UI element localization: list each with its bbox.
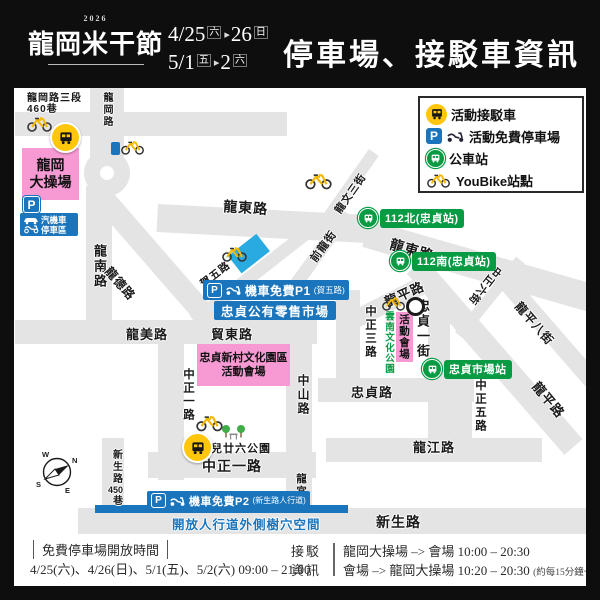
frame-bottom bbox=[0, 586, 600, 600]
market-banner: 忠貞公有零售市場 bbox=[214, 301, 336, 320]
frame-right bbox=[586, 0, 600, 600]
road-label-longgang-rd-sec3-ln460: 龍岡路三段 460巷 bbox=[27, 93, 82, 115]
footer-divider bbox=[333, 543, 335, 576]
shuttle-info-label-1: 接駁 bbox=[291, 541, 321, 560]
youbike-icon bbox=[120, 139, 146, 155]
label-park-er-nian-liu: 兒廿六公園 bbox=[211, 440, 271, 456]
shuttle-bus-icon bbox=[426, 104, 447, 125]
p2-sublabel: (新生路人行道) bbox=[252, 495, 305, 506]
legend-label: YouBike站點 bbox=[456, 171, 533, 190]
legend-label: 活動接駁車 bbox=[451, 105, 516, 124]
area-event-venue: 活動會場 bbox=[396, 312, 413, 362]
event-date-line: 4/25六▸26日 bbox=[168, 20, 270, 48]
bus-stop-label: 忠貞市場站 bbox=[444, 360, 512, 379]
logo-divider bbox=[48, 64, 144, 65]
city-bus-icon bbox=[358, 208, 378, 228]
area-culture-village-venue: 忠貞新村文化園區 活動會場 bbox=[197, 344, 290, 386]
youbike-icon bbox=[221, 245, 249, 262]
youbike-kiosk-icon bbox=[111, 142, 120, 155]
logo-title: 龍岡米干節 bbox=[28, 24, 163, 61]
event-date-line: 5/1五▸2六 bbox=[168, 48, 270, 76]
p2-label: 機車免費P2 bbox=[189, 493, 249, 509]
date-weekday: 五 bbox=[197, 54, 211, 67]
date-separator: ▸ bbox=[214, 57, 220, 69]
road-label-zhongzhen-rd: 忠貞路 bbox=[351, 382, 393, 401]
compass-w: W bbox=[42, 450, 50, 459]
shuttle-stop-park bbox=[182, 432, 213, 463]
youbike-icon bbox=[381, 295, 407, 311]
road-segment bbox=[336, 290, 360, 390]
shuttle-schedule-row1: 龍岡大操場 –> 會場 10:00 – 20:30 bbox=[343, 541, 530, 560]
free-parking-hours: 4/25(六)、4/26(日)、5/1(五)、5/2(六) 09:00 – 21… bbox=[30, 559, 311, 578]
parking-p2-banner: P 機車免費P2(新生路人行道) bbox=[147, 491, 310, 510]
shuttle-info-label-2: 資訊 bbox=[291, 560, 321, 579]
legend-label: 活動免費停車場 bbox=[469, 127, 560, 146]
bus-stop-112-north: 112北(忠貞站) bbox=[358, 208, 464, 228]
parking-p1-banner: P 機車免費P1(賀五路) bbox=[203, 280, 349, 300]
parking-icon: P bbox=[426, 128, 442, 144]
youbike-icon bbox=[304, 171, 334, 190]
compass-n: N bbox=[72, 456, 77, 465]
p1-label: 機車免費P1 bbox=[245, 282, 311, 299]
date-weekday: 六 bbox=[207, 26, 221, 39]
shuttle-row2-text: 會場 –> 龍岡大操場 10:20 – 20:30 bbox=[343, 563, 530, 578]
label-yunnan-culture-park: 雲南文化公園 bbox=[381, 311, 395, 374]
area-longgang-playground: 龍岡 大操場 bbox=[22, 148, 79, 200]
date-value: 5/1 bbox=[168, 50, 195, 74]
car-scooter-icon bbox=[23, 216, 39, 234]
legend-item-parking: P 活動免費停車場 bbox=[426, 125, 576, 147]
bus-stop-label: 112北(忠貞站) bbox=[380, 209, 464, 228]
event-dates: 4/25六▸26日 5/1五▸2六 bbox=[168, 20, 270, 76]
date-weekday: 六 bbox=[233, 54, 247, 67]
date-weekday: 日 bbox=[254, 26, 268, 39]
sidewalk-note: 開放人行道外側樹穴空間 bbox=[172, 514, 321, 533]
festival-logo: 2026 龍岡米干節 bbox=[28, 14, 163, 65]
road-label-zhongzheng-1st-rd-v: 中正一路 bbox=[180, 368, 196, 422]
shuttle-stop-playground bbox=[50, 122, 81, 153]
city-bus-icon bbox=[390, 251, 410, 271]
lane-label-num: 450 bbox=[108, 485, 123, 495]
compass-s: S bbox=[36, 480, 41, 489]
scooter-icon bbox=[446, 130, 465, 143]
car-scooter-parking-box: 汽機車 停車區 bbox=[20, 213, 78, 236]
date-value: 2 bbox=[220, 50, 231, 74]
road-label-xinsheng-rd-ln450: 新生路450巷 bbox=[108, 449, 135, 507]
date-value: 4/25 bbox=[168, 22, 205, 46]
page-title: 停車場、接駁車資訊 bbox=[283, 30, 580, 74]
youbike-icon bbox=[195, 413, 225, 432]
road-label-longnan-rd: 龍南路 bbox=[90, 244, 109, 289]
shuttle-schedule-row2: 會場 –> 龍岡大操場 10:20 – 20:30 (約每15分鐘一班車) bbox=[343, 560, 600, 579]
city-bus-icon bbox=[422, 359, 442, 379]
market-label: 忠貞公有零售市場 bbox=[221, 301, 329, 320]
scooter-icon bbox=[169, 495, 186, 507]
map-legend: 活動接駁車 P 活動免費停車場 公車站 YouBike站點 bbox=[418, 96, 584, 193]
road-label-zhongzheng-3rd-rd: 中正三路 bbox=[362, 305, 378, 359]
road-label-longgang-rd: 龍岡路 bbox=[99, 92, 114, 128]
legend-label: 公車站 bbox=[449, 149, 488, 168]
car-scooter-parking-label: 汽機車 停車區 bbox=[41, 215, 67, 235]
bus-stop-zhongzhen-market: 忠貞市場站 bbox=[422, 359, 512, 379]
mini-roundabout-icon bbox=[406, 297, 425, 316]
parking-icon: P bbox=[23, 196, 40, 213]
youbike-icon bbox=[426, 172, 452, 188]
logo-year: 2026 bbox=[28, 14, 163, 23]
parking-icon: P bbox=[151, 493, 166, 508]
city-bus-icon bbox=[426, 149, 445, 168]
compass-e: E bbox=[65, 486, 70, 495]
road-label-longjiang-rd: 龍江路 bbox=[413, 437, 455, 456]
lane-label-part: 新生路 bbox=[111, 449, 122, 485]
road-label-maodong-rd: 貿東路 bbox=[211, 324, 253, 343]
legend-item-shuttle: 活動接駁車 bbox=[426, 103, 576, 125]
parking-shuttle-map: 龍岡路三段 460巷 龍岡路 龍南路 龍德路 龍美路 貿東路 賀五路 龍東路 龍… bbox=[0, 0, 600, 600]
compass-rose: W N E S bbox=[32, 445, 82, 497]
frame-left bbox=[0, 0, 14, 600]
p1-sublabel: (賀五路) bbox=[314, 284, 345, 296]
road-label-zhongzheng-5th-rd: 中正五路 bbox=[472, 379, 488, 433]
youbike-icon bbox=[26, 115, 54, 132]
date-separator: ▸ bbox=[224, 29, 230, 41]
scooter-icon bbox=[225, 284, 242, 296]
date-value: 26 bbox=[231, 22, 252, 46]
lane-label-tail: 巷 bbox=[111, 495, 122, 507]
legend-item-youbike: YouBike站點 bbox=[426, 169, 576, 191]
road-label-longdong-rd-west: 龍東路 bbox=[223, 196, 269, 219]
bus-stop-112-south: 112南(忠貞站) bbox=[390, 251, 496, 271]
road-label-zhongshan-rd: 中山路 bbox=[295, 374, 312, 416]
road-label-longmei-rd: 龍美路 bbox=[126, 324, 168, 343]
legend-item-bus-stop: 公車站 bbox=[426, 147, 576, 169]
bus-stop-label: 112南(忠貞站) bbox=[412, 252, 496, 271]
free-parking-hours-title: 免費停車場開放時間 bbox=[33, 540, 168, 559]
parking-icon: P bbox=[207, 283, 222, 298]
road-label-zhongzheng-1st-rd-h: 中正一路 bbox=[202, 456, 262, 476]
header-bar: 2026 龍岡米干節 4/25六▸26日 5/1五▸2六 停車場、接駁車資訊 bbox=[0, 0, 600, 88]
road-label-xinsheng-rd: 新生路 bbox=[376, 512, 421, 532]
